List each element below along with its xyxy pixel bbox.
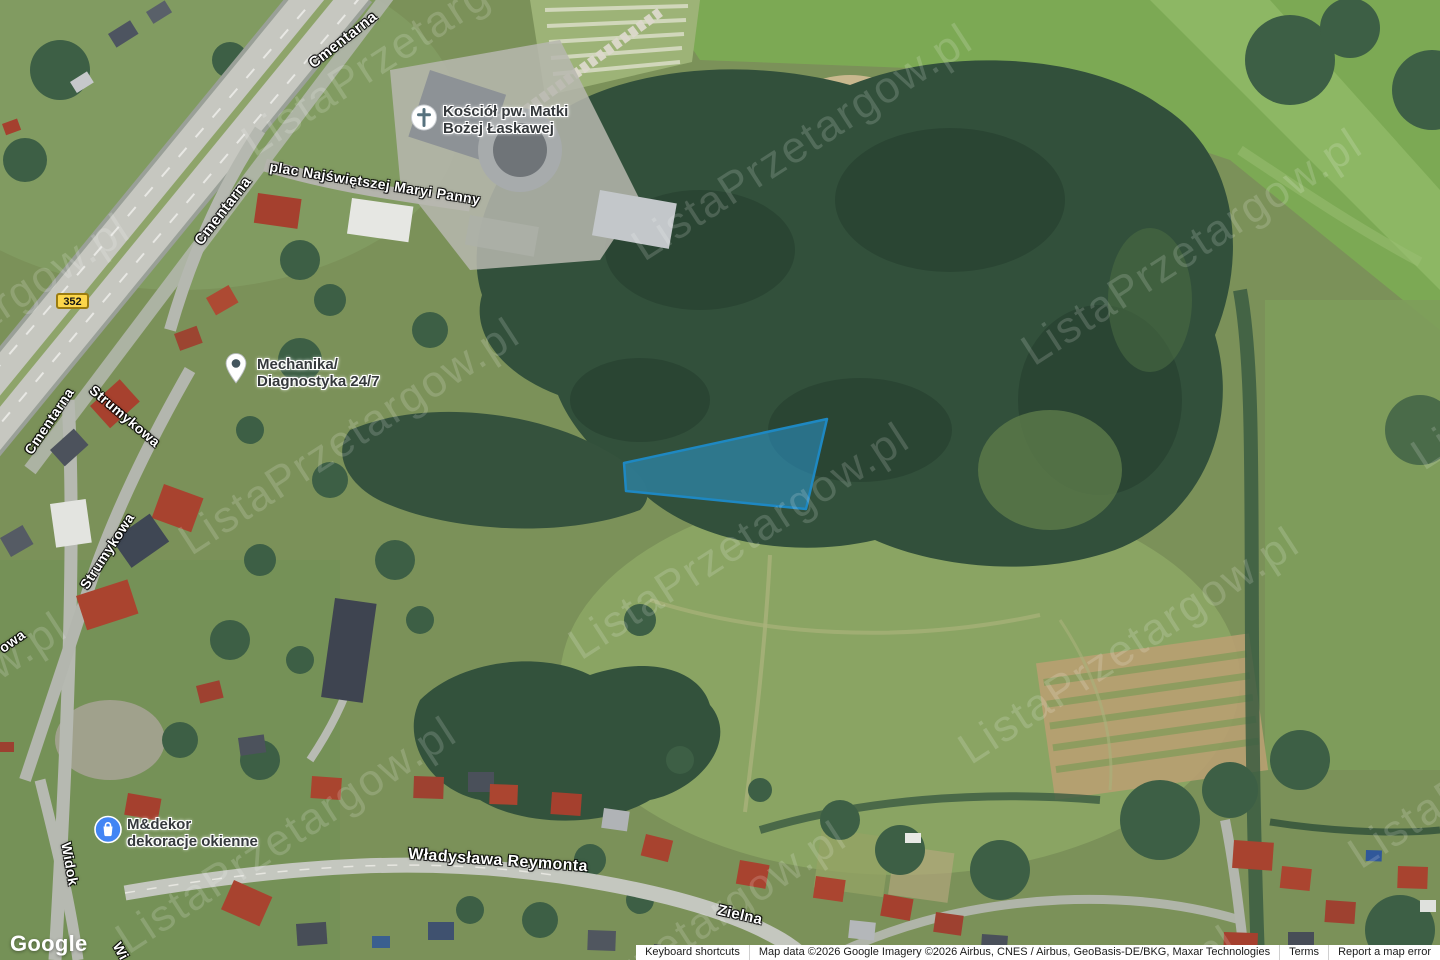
poi-label-mechanic[interactable]: Mechanika/Diagnostyka 24/7 [257,356,380,390]
worship-icon[interactable] [411,104,438,136]
terms-link[interactable]: Terms [1280,945,1328,960]
shopping-icon[interactable] [94,816,122,849]
google-logo[interactable]: Google [10,931,88,957]
poi-label-mdekor[interactable]: M&dekordekoracje okienne [127,816,258,850]
report-map-error-link[interactable]: Report a map error [1329,945,1440,960]
footer-bar: Keyboard shortcuts Map data ©2026 Google… [636,945,1440,960]
route-badge-352: 352 [56,293,89,309]
map-attribution: Map data ©2026 Google Imagery ©2026 Airb… [750,945,1279,960]
pin-icon[interactable] [225,353,248,390]
poi-label-church[interactable]: Kościół pw. MatkiBożej Łaskawej [443,103,568,137]
keyboard-shortcuts-button[interactable]: Keyboard shortcuts [636,945,749,960]
map-canvas[interactable]: ListaPrzetargow.plListaPrzetargow.plList… [0,0,1440,960]
